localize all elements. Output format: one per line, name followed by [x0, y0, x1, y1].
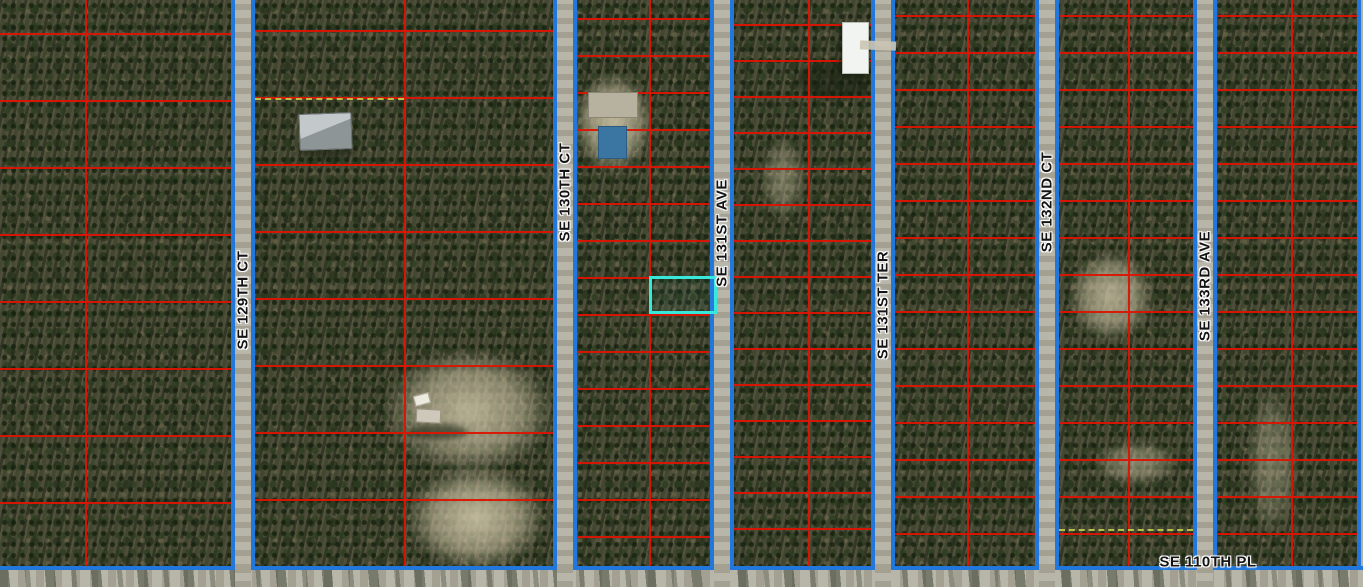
parcel-row-line	[895, 422, 1035, 424]
parcel-row-line	[0, 100, 231, 102]
pool-structure	[598, 126, 627, 159]
street-label-se-131st-ave: SE 131ST AVE	[714, 179, 731, 287]
parcel-row-line	[1217, 126, 1363, 128]
parcel-row-line	[895, 52, 1035, 54]
parcel-row-line	[895, 385, 1035, 387]
clearing-patch	[405, 465, 547, 571]
parcel-row-line	[1059, 274, 1193, 276]
parcel-row-line	[1217, 422, 1363, 424]
parcel-row-line	[1059, 52, 1193, 54]
street-label-se-129th-ct: SE 129TH CT	[235, 251, 252, 350]
parcel-row-line	[734, 168, 871, 170]
parcel-row-line	[734, 276, 871, 278]
street-label-se-132nd-ct: SE 132ND CT	[1039, 152, 1056, 253]
parcel-row-line	[895, 459, 1035, 461]
trailer-structure	[588, 92, 638, 118]
parcel-row-line	[1059, 533, 1193, 535]
parcel-row-line	[895, 496, 1035, 498]
parcel-row-line	[895, 311, 1035, 313]
street-label-se-131st-ter: SE 131ST TER	[875, 251, 892, 360]
road-se-130th-ct	[553, 0, 577, 570]
parcel-row-line	[577, 129, 710, 131]
parcel-row-line	[577, 166, 710, 168]
parcel-row-line	[1059, 237, 1193, 239]
parcel-row-line	[1217, 237, 1363, 239]
parcel-mid-line	[967, 0, 969, 566]
parcel-row-line	[1059, 348, 1193, 350]
parcel-row-line	[734, 528, 871, 530]
street-label-se-130th-ct: SE 130TH CT	[557, 143, 574, 242]
parcel-row-line	[895, 15, 1035, 17]
parcel-row-line	[577, 203, 710, 205]
parcel-row-line	[1217, 200, 1363, 202]
parcel-row-line	[0, 33, 231, 35]
parcel-row-line	[1217, 533, 1363, 535]
bottom-road-tree-shadows	[0, 570, 1363, 587]
road-se-132nd-ct	[1035, 0, 1059, 570]
parcel-row-line	[577, 18, 710, 20]
parcel-row-line	[895, 237, 1035, 239]
street-label-se-110th-pl: SE 110TH PL	[1159, 554, 1256, 571]
clearing-patch	[1068, 250, 1154, 342]
parcel-row-line	[577, 55, 710, 57]
road-stub-se-131st-ter	[875, 570, 891, 587]
parcel-row-line	[0, 435, 231, 437]
parcel-row-line	[734, 420, 871, 422]
parcel-row-line	[734, 96, 871, 98]
gray-roof-house-structure	[298, 112, 352, 151]
parcel-row-line	[577, 462, 710, 464]
parcel-row-line	[577, 536, 710, 538]
parcel-row-line	[734, 348, 871, 350]
parcel-mid-line	[808, 0, 810, 566]
parcel-row-line	[895, 163, 1035, 165]
parcel-row-line	[1217, 348, 1363, 350]
parcel-row-line	[577, 425, 710, 427]
parcel-row-line	[0, 301, 231, 303]
parcel-row-line	[895, 348, 1035, 350]
parcel-row-line	[577, 240, 710, 242]
parcel-row-line	[1059, 496, 1193, 498]
parcel-row-line	[734, 240, 871, 242]
parcel-row-line	[895, 274, 1035, 276]
parcel-row-line	[1217, 163, 1363, 165]
dashed-lot-line	[1059, 529, 1193, 531]
parcel-row-line	[1059, 163, 1193, 165]
parcel-row-line	[0, 167, 231, 169]
driveway-structure	[860, 40, 896, 50]
parcel-mid-line	[1128, 0, 1130, 566]
map-stage[interactable]: SE 129TH CTSE 130TH CTSE 131ST AVESE 131…	[0, 0, 1363, 587]
street-label-se-133rd-ave: SE 133RD AVE	[1197, 231, 1214, 341]
parcel-row-line	[1059, 311, 1193, 313]
parcel-row-line	[577, 499, 710, 501]
parcel-row-line	[1059, 89, 1193, 91]
road-stub-se-129th-ct	[235, 570, 251, 587]
parcel-row-line	[1217, 385, 1363, 387]
road-stub-se-132nd-ct	[1039, 570, 1055, 587]
parcel-row-line	[1217, 459, 1363, 461]
parcel-row-line	[734, 492, 871, 494]
parcel-row-line	[1059, 459, 1193, 461]
parcel-row-line	[1217, 15, 1363, 17]
parcel-row-line	[734, 456, 871, 458]
parcel-row-line	[734, 204, 871, 206]
parcel-mid-line	[85, 0, 87, 566]
parcel-row-line	[1059, 15, 1193, 17]
parcel-row-line	[1217, 496, 1363, 498]
parcel-row-line	[577, 388, 710, 390]
parcel-mid-line	[1291, 0, 1293, 566]
parcel-row-line	[0, 502, 231, 504]
parcel-row-line	[734, 132, 871, 134]
parcel-row-line	[577, 314, 710, 316]
highlighted-parcel-outline	[649, 276, 717, 314]
parcel-row-line	[1059, 422, 1193, 424]
parcel-row-line	[1059, 200, 1193, 202]
road-stub-se-133rd-ave	[1197, 570, 1213, 587]
parcel-row-line	[1217, 274, 1363, 276]
shed-structure	[416, 408, 442, 423]
parcel-row-line	[0, 234, 231, 236]
parcel-row-line	[1059, 126, 1193, 128]
parcel-row-line	[0, 368, 231, 370]
parcel-row-line	[1217, 89, 1363, 91]
parcel-row-line	[895, 533, 1035, 535]
parcel-row-line	[734, 384, 871, 386]
parcel-row-line	[895, 126, 1035, 128]
dashed-lot-line	[255, 98, 404, 100]
parcel-row-line	[895, 200, 1035, 202]
road-stub-se-130th-ct	[557, 570, 573, 587]
parcel-row-line	[895, 89, 1035, 91]
clearing-patch	[760, 135, 806, 221]
parcel-row-line	[734, 312, 871, 314]
parcel-mid-line	[404, 0, 406, 566]
parcel-row-line	[1059, 385, 1193, 387]
parcel-row-line	[577, 351, 710, 353]
parcel-row-line	[1217, 311, 1363, 313]
clearing-patch	[1093, 440, 1179, 486]
parcel-row-line	[1217, 52, 1363, 54]
road-stub-se-131st-ave	[714, 570, 730, 587]
